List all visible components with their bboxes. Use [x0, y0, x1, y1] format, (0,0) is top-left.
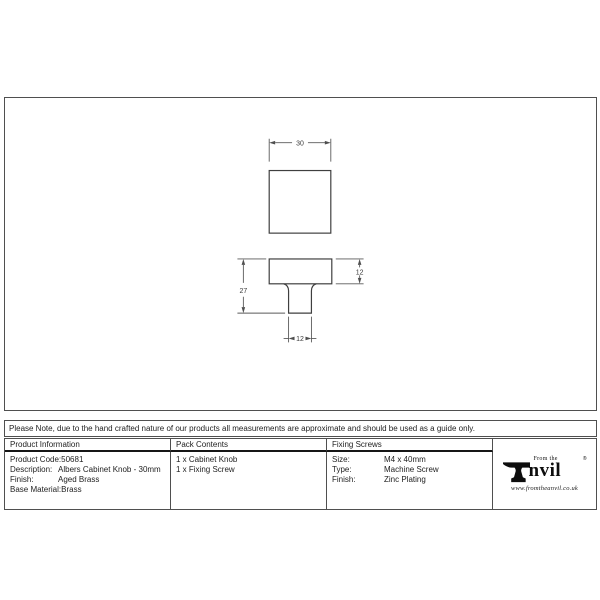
dim-label-12-stem: 12	[296, 336, 304, 343]
finish-label: Finish:	[10, 475, 58, 485]
dimension-12-stem: 12	[284, 317, 317, 343]
logo-brand-text: nvil	[529, 460, 562, 482]
product-information-cell: Product Code: 50681 Description: Albers …	[5, 452, 171, 509]
anvil-logo: From the nvil ®	[503, 456, 587, 484]
dim-label-27: 27	[240, 288, 248, 295]
base-material-value: Brass	[61, 485, 81, 495]
header-product-information: Product Information	[5, 439, 171, 452]
dim-label-12-head: 12	[356, 269, 364, 276]
screw-finish-row: Finish: Zinc Plating	[332, 475, 492, 485]
spec-sheet: 30 27 12	[0, 0, 600, 600]
base-material-label: Base Material:	[10, 485, 61, 495]
screw-size-value: M4 x 40mm	[384, 455, 426, 465]
anvil-icon	[503, 459, 530, 483]
screw-finish-value: Zinc Plating	[384, 475, 426, 485]
screw-type-row: Type: Machine Screw	[332, 465, 492, 475]
logo-website-text: www.fromtheanvil.co.uk	[511, 485, 578, 492]
base-material-row: Base Material: Brass	[10, 485, 170, 495]
description-value: Albers Cabinet Knob - 30mm	[58, 465, 161, 475]
product-code-value: 50681	[61, 455, 83, 465]
product-code-label: Product Code:	[10, 455, 61, 465]
measurement-note: Please Note, due to the hand crafted nat…	[4, 420, 597, 437]
finish-value: Aged Brass	[58, 475, 99, 485]
screw-type-label: Type:	[332, 465, 384, 475]
technical-drawing-area: 30 27 12	[4, 97, 597, 411]
screw-finish-label: Finish:	[332, 475, 384, 485]
pack-item: 1 x Fixing Screw	[176, 465, 326, 475]
header-fixing-screws: Fixing Screws	[327, 439, 493, 452]
pack-item: 1 x Cabinet Knob	[176, 455, 326, 465]
pack-contents-cell: 1 x Cabinet Knob 1 x Fixing Screw	[171, 452, 327, 509]
front-view-head	[269, 259, 332, 284]
top-view-square	[269, 171, 331, 234]
header-pack-contents: Pack Contents	[171, 439, 327, 452]
description-label: Description:	[10, 465, 58, 475]
brand-logo-cell: From the nvil ® www.fromtheanvil.co.uk	[493, 439, 596, 509]
product-code-row: Product Code: 50681	[10, 455, 170, 465]
dimension-12-head: 12	[336, 259, 364, 284]
registered-trademark-icon: ®	[583, 456, 587, 462]
screw-type-value: Machine Screw	[384, 465, 439, 475]
dimension-27: 27	[237, 259, 285, 313]
dim-label-30: 30	[296, 140, 304, 147]
dimension-30: 30	[269, 139, 331, 162]
technical-drawing: 30 27 12	[5, 98, 596, 410]
fixing-screws-cell: Size: M4 x 40mm Type: Machine Screw Fini…	[327, 452, 493, 509]
finish-row: Finish: Aged Brass	[10, 475, 170, 485]
spec-table: Product Information Pack Contents Fixing…	[4, 438, 597, 510]
screw-size-label: Size:	[332, 455, 384, 465]
front-view-stem	[284, 284, 317, 313]
screw-size-row: Size: M4 x 40mm	[332, 455, 492, 465]
description-row: Description: Albers Cabinet Knob - 30mm	[10, 465, 170, 475]
